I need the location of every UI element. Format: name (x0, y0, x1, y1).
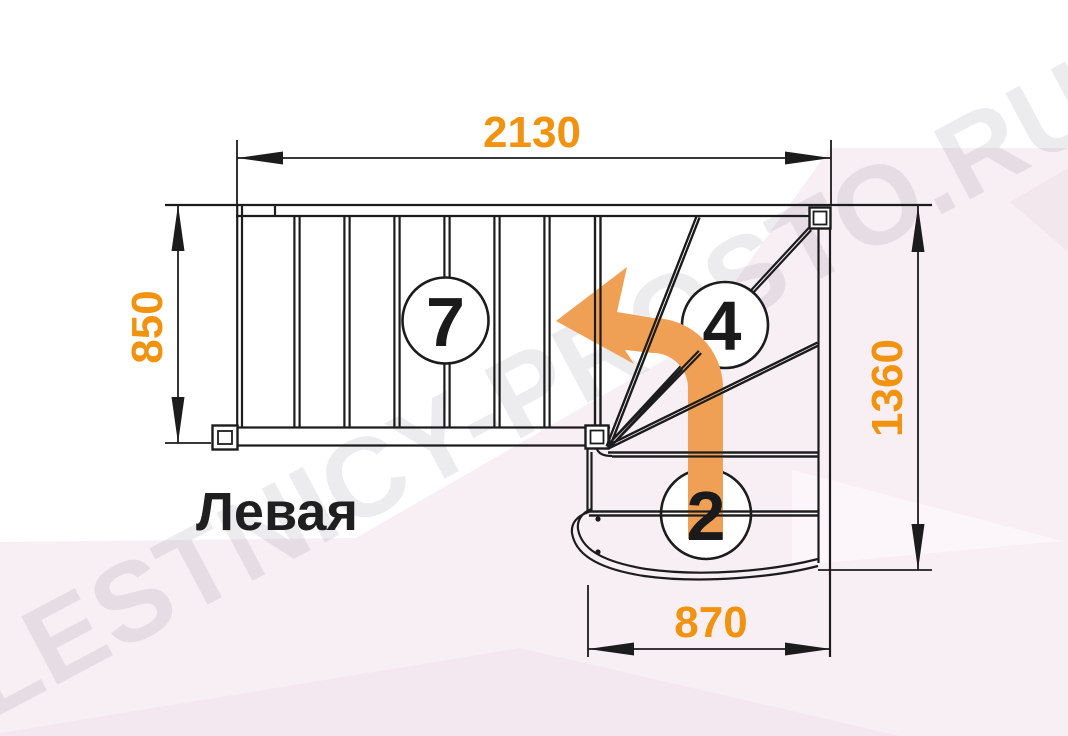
dowel-dot (595, 516, 600, 521)
winder-flight-step-count: 4 (703, 287, 742, 365)
arrowhead-icon (172, 397, 185, 443)
dimension-top-value: 2130 (483, 108, 581, 157)
arrowhead-icon (237, 152, 283, 165)
newel-post-bottom-left (213, 426, 238, 450)
dimension-bottom-value: 870 (674, 598, 747, 647)
lower-flight-step-count: 2 (687, 477, 726, 555)
dimension-right-value: 1360 (863, 339, 912, 437)
newel-post-pivot (586, 426, 609, 449)
stair-plan-canvas: LESTNICY-PROSTO.RU 2130 850 1360 870 (0, 0, 1068, 736)
stair-plan-drawing: LESTNICY-PROSTO.RU 2130 850 1360 870 (0, 0, 1068, 736)
dimension-left-value: 850 (123, 290, 172, 363)
upper-flight-step-count: 7 (426, 283, 465, 361)
arrowhead-icon (172, 205, 185, 251)
plan-title: Левая (196, 482, 358, 542)
dowel-dot (595, 549, 600, 554)
